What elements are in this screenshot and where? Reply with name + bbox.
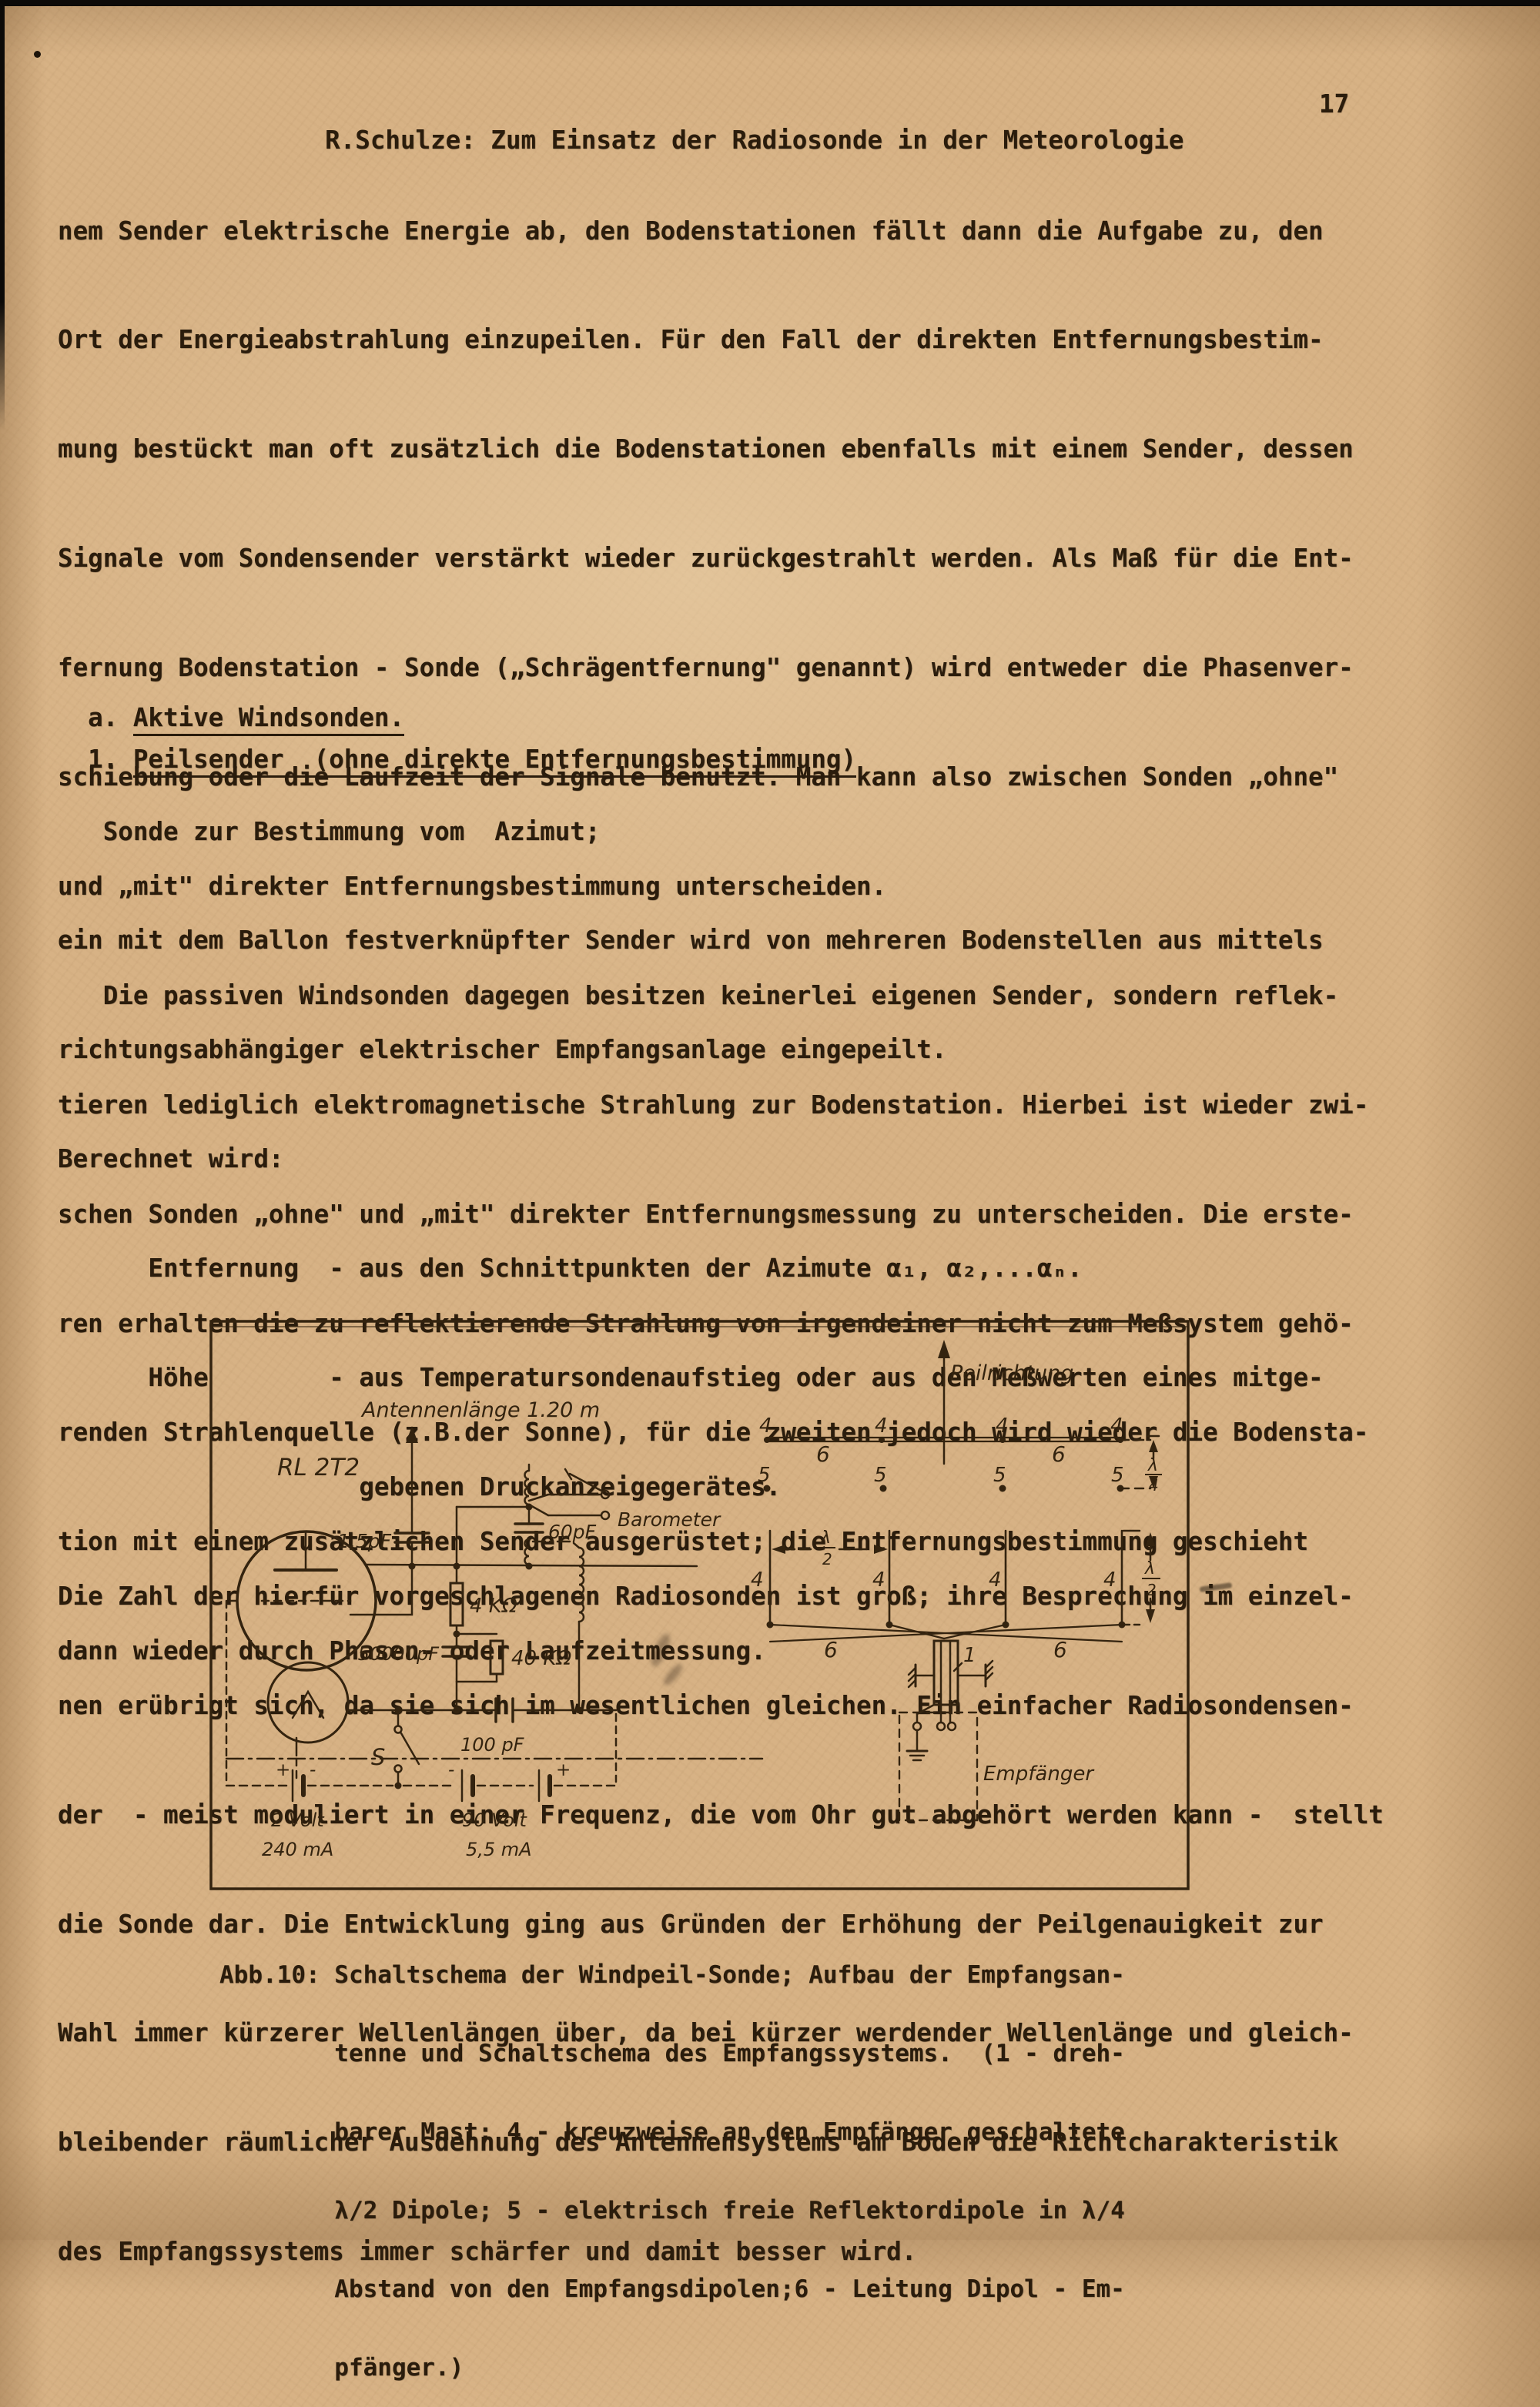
feed-label: 6: [1053, 1637, 1067, 1662]
dipole-label: 4: [989, 1568, 1002, 1592]
svg-text:λ: λ: [820, 1528, 831, 1548]
svg-text:λ: λ: [1147, 1456, 1158, 1475]
text-line: mung bestückt man oft zusätzlich die Bod…: [58, 431, 1368, 467]
polarity-minus: -: [310, 1760, 316, 1780]
caption-line: tenne und Schaltschema des Empfangssyste…: [219, 2040, 1125, 2067]
antenna-length-label: Antennenlänge 1.20 m: [360, 1398, 600, 1422]
text-line: richtungsabhängiger elektrischer Empfang…: [58, 1032, 1384, 1068]
dipole-label: 4: [1103, 1568, 1116, 1592]
dipole-label: 4: [996, 1414, 1009, 1438]
polarity-plus: +: [276, 1760, 290, 1780]
ink-speck: [34, 51, 41, 58]
polarity-plus: +: [556, 1760, 571, 1780]
figure-border: [211, 1321, 1188, 1889]
capacitor-50000pf: [443, 1647, 470, 1682]
dipole-label: 4: [872, 1568, 885, 1592]
reflector-label: 5: [993, 1464, 1006, 1487]
mast: [934, 1641, 962, 1722]
dipole-label: 4: [751, 1568, 764, 1592]
text-line: Ort der Energieabstrahlung einzupeilen. …: [58, 322, 1368, 358]
figure-caption: Abb.10: Schaltschema der Windpeil-Sonde;…: [219, 1910, 1125, 2407]
text-line: Signale vom Sondensender verstärkt wiede…: [58, 541, 1368, 577]
res-40k-label: 40 KΩ: [511, 1647, 571, 1670]
switch-s: [395, 1710, 420, 1786]
cap-100pf-label: 100 pF: [460, 1734, 525, 1756]
svg-text:2: 2: [822, 1550, 832, 1568]
text-line: nem Sender elektrische Energie ab, den B…: [58, 213, 1368, 249]
scan-edge-top: [0, 0, 1540, 6]
battery2-current: 5,5 mA: [466, 1839, 532, 1860]
tank-coil: [574, 1543, 584, 1710]
battery2-voltage: 90 Volt: [462, 1809, 528, 1831]
feed-label: 6: [824, 1637, 838, 1662]
res-4k-label: 4 KΩ: [470, 1595, 517, 1618]
scanned-document-page: { "page": { "header": { "title": "R.Schu…: [0, 0, 1540, 2240]
reflector-label: 5: [758, 1464, 771, 1487]
peilrichtung-label: Peilrichtung: [950, 1361, 1073, 1385]
reflector-label: 5: [874, 1464, 887, 1487]
caption-line: pfänger.): [219, 2355, 1125, 2381]
lambda-half-fraction-v: λ 2: [1142, 1559, 1160, 1599]
text-line: Berechnet wird:: [58, 1141, 1384, 1177]
caption-line: Abstand von den Empfangsdipolen;6 - Leit…: [219, 2276, 1125, 2302]
lambda-half-fraction-h: λ 2: [817, 1528, 835, 1568]
capacitor-100pf: [496, 1699, 513, 1722]
figure-abb10: Antennenlänge 1.20 m RL 2T2 1,5pF 60pF 4…: [209, 1320, 1190, 1890]
barometer-label: Barometer: [618, 1508, 721, 1531]
feeder-lines: [770, 1625, 1122, 1642]
reflector-dots: [764, 1485, 1124, 1492]
caption-line: barer Mast; 4 - kreuzweise an den Empfän…: [219, 2119, 1125, 2145]
svg-text:4: 4: [1149, 1476, 1159, 1495]
caption-line: λ/2 Dipole; 5 - elektrisch freie Reflekt…: [219, 2198, 1125, 2224]
dipole-label: 4: [1110, 1414, 1123, 1438]
lambda-quarter-fraction: λ 4: [1145, 1456, 1162, 1495]
antenna-diagram: [764, 1340, 1160, 1820]
feed-label: 6: [1052, 1441, 1066, 1467]
peilrichtung-arrow-icon: [938, 1340, 950, 1358]
cap-50000pf-label: 50000pF: [358, 1643, 440, 1665]
receiver-label: Empfänger: [983, 1763, 1095, 1786]
cap-1p5pf-label: 1,5pF: [337, 1530, 392, 1552]
battery1-voltage: 2 Volt: [271, 1809, 325, 1831]
dipole-label: 4: [759, 1414, 772, 1438]
cap-60pf-label: 60pF: [548, 1521, 597, 1543]
mast-label: 1: [963, 1644, 976, 1667]
svg-text:λ: λ: [1144, 1559, 1155, 1578]
battery1-current: 240 mA: [262, 1839, 333, 1860]
reflector-label: 5: [1111, 1464, 1124, 1487]
polarity-minus: -: [448, 1760, 454, 1780]
tube-type-label: RL 2T2: [277, 1454, 360, 1481]
barometer-switch: [529, 1469, 609, 1519]
dipole-label: 4: [875, 1414, 888, 1438]
scan-edge-left: [0, 0, 5, 431]
switch-label: S: [371, 1744, 385, 1770]
figure-schematic: Antennenlänge 1.20 m RL 2T2 1,5pF 60pF 4…: [209, 1320, 1190, 1890]
receiver-box: [899, 1705, 977, 1820]
text-line: ein mit dem Ballon festverknüpfter Sende…: [58, 922, 1384, 959]
text-line: Entfernung - aus den Schnittpunkten der …: [58, 1250, 1384, 1287]
resistor-40k: [457, 1634, 503, 1682]
svg-text:2: 2: [1147, 1581, 1157, 1599]
antenna-arrow-icon: [406, 1426, 418, 1443]
caption-line: Abb.10: Schaltschema der Windpeil-Sonde;…: [219, 1962, 1125, 1988]
text-line: Sonde zur Bestimmung vom Azimut;: [58, 814, 1384, 850]
page-number: 17: [1319, 86, 1349, 122]
feed-label: 6: [816, 1441, 830, 1467]
